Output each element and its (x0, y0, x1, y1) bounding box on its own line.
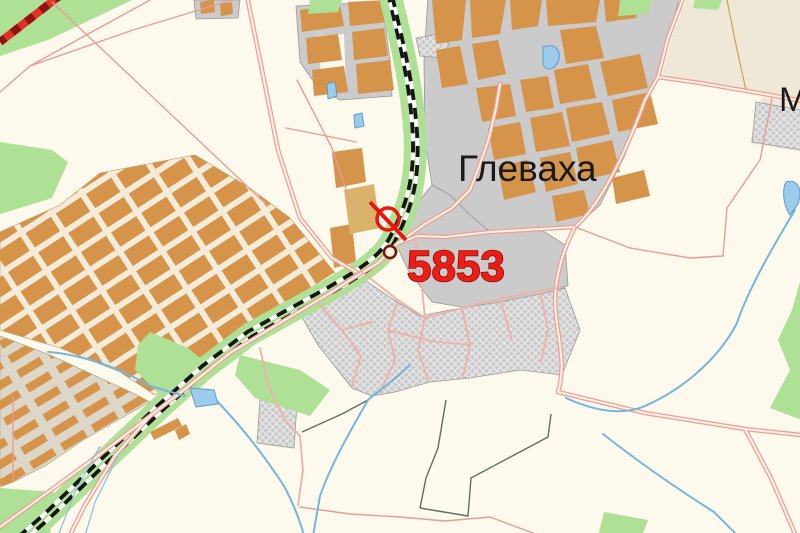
waypoint-label: 5853 (407, 242, 505, 291)
pond (354, 113, 364, 128)
map-image[interactable]: Глеваха 5853 М (0, 0, 800, 533)
pond (327, 82, 337, 99)
town-label: Глеваха (458, 148, 597, 189)
edge-town-label-partial: М (779, 81, 800, 119)
map-canvas[interactable]: Глеваха 5853 М (0, 0, 800, 533)
